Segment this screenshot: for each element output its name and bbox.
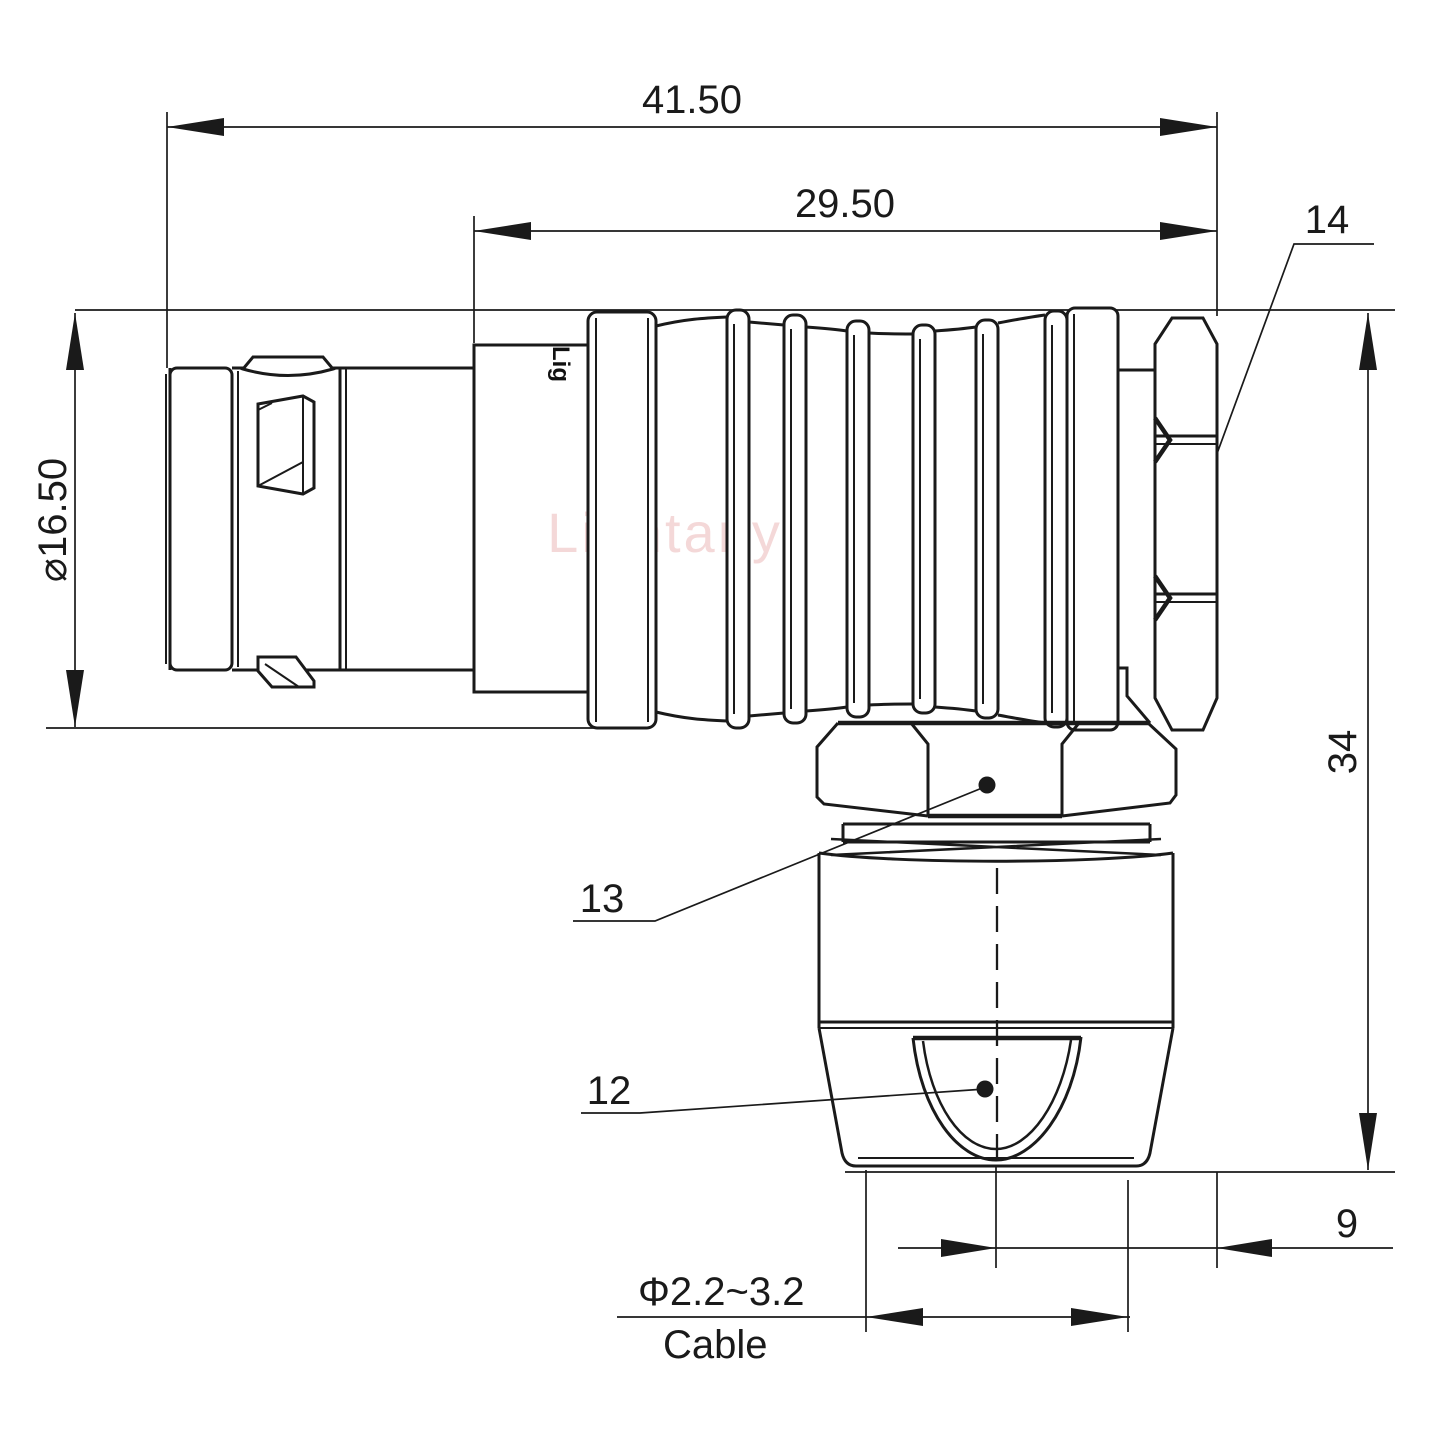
back-nut-flat-sides: [911, 723, 1079, 816]
dim-text-overall-length: 41.50: [642, 78, 742, 122]
arrowhead-right: [1160, 222, 1217, 240]
boot-rib: [727, 310, 749, 728]
callout-13-back-nut: 13: [573, 777, 996, 922]
arrowhead-left: [474, 222, 531, 240]
nut-outline: [1155, 318, 1217, 730]
dim-text-shell-diameter: ⌀16.50: [31, 458, 75, 582]
arrowhead-bottom: [66, 670, 84, 727]
arrowhead-left: [167, 118, 224, 136]
arrowhead-left-outside: [941, 1239, 996, 1257]
elbow-inner-step: [1118, 668, 1150, 723]
coupling-nut-14: [1155, 318, 1217, 730]
detent-bump: [243, 357, 333, 376]
connector-technical-drawing: Lightany 41.50 29.50 ⌀16.50 34: [0, 0, 1440, 1440]
boot-rib: [976, 320, 998, 718]
dimension-cable-range: Φ2.2~3.2 Cable: [617, 1170, 1130, 1367]
arrowhead-left: [866, 1308, 923, 1326]
boot-rib: [1045, 311, 1067, 727]
gland-cutout-inner-curve: [923, 1040, 1071, 1149]
arrowhead-right: [1160, 118, 1217, 136]
collar-outline: [588, 312, 656, 728]
dimension-center-to-edge: 9: [898, 1166, 1393, 1268]
drawing-canvas: Lightany 41.50 29.50 ⌀16.50 34: [0, 0, 1440, 1440]
leader-dot: [979, 777, 996, 794]
arrowhead-top: [1359, 313, 1377, 370]
connector-collar: [588, 312, 656, 728]
back-nut-13: [817, 723, 1176, 816]
arrowhead-right: [1071, 1308, 1128, 1326]
leader-dot: [977, 1081, 994, 1098]
boot-rib: [913, 325, 935, 713]
label-cable-gland: 12: [587, 1069, 632, 1113]
label-coupling-nut: 14: [1305, 198, 1350, 242]
dim-text-rear-length: 29.50: [795, 182, 895, 226]
gland-assembly: [819, 824, 1173, 1166]
back-nut-left-facet: [817, 723, 928, 816]
back-nut-right-facet: [1062, 723, 1176, 816]
label-back-nut: 13: [580, 877, 625, 921]
connector-neck-and-elbow: [1118, 370, 1155, 723]
dim-text-center-to-edge: 9: [1336, 1202, 1358, 1246]
dim-text-cable-range: Φ2.2~3.2: [638, 1270, 804, 1314]
dim-text-overall-height: 34: [1321, 730, 1365, 775]
boot-rib: [847, 321, 869, 717]
arrowhead-top: [66, 313, 84, 370]
dim-text-cable-label: Cable: [663, 1323, 768, 1367]
dimension-overall-height: 34: [1321, 313, 1377, 1170]
dimension-shell-diameter: ⌀16.50: [31, 313, 84, 727]
bayonet-slot: [258, 657, 314, 687]
boot-rib: [784, 315, 806, 723]
leader-line: [573, 786, 987, 921]
arrowhead-right-outside: [1217, 1239, 1272, 1257]
body-engraved-logo: Lig: [547, 346, 574, 382]
arrowhead-bottom: [1359, 1113, 1377, 1170]
connector-front-shell: [166, 357, 474, 687]
bayonet-window: [258, 396, 314, 494]
front-rim: [170, 368, 232, 670]
